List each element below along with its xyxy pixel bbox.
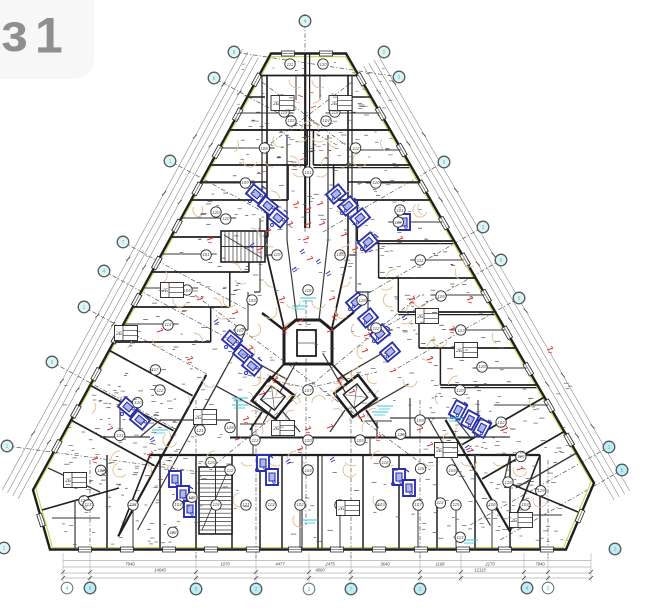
svg-text:12115: 12115 [474,568,486,573]
svg-text:106: 106 [260,146,268,151]
svg-text:104: 104 [174,502,182,507]
svg-text:102: 102 [296,502,304,507]
svg-text:113: 113 [130,502,138,507]
svg-text:106: 106 [488,502,496,507]
svg-text:8: 8 [233,50,236,56]
svg-text:104: 104 [448,468,456,473]
svg-text:2: 2 [255,587,258,593]
svg-text:104: 104 [304,468,312,473]
svg-text:2Б: 2Б [417,314,424,320]
svg-text:103: 103 [248,298,256,303]
svg-text:5: 5 [621,468,624,474]
svg-text:1: 1 [3,546,6,552]
svg-text:111: 111 [287,62,294,67]
svg-text:101: 101 [396,208,404,213]
svg-text:1168: 1168 [435,562,445,567]
svg-text:3: 3 [482,225,485,231]
svg-text:2170: 2170 [484,562,495,567]
svg-text:104: 104 [236,328,244,333]
svg-text:6: 6 [51,360,54,366]
svg-text:з: з [1,3,28,63]
svg-text:7: 7 [122,240,125,246]
svg-text:128: 128 [478,364,486,369]
svg-text:110: 110 [223,216,231,221]
svg-text:2: 2 [614,547,617,553]
svg-text:120: 120 [134,400,142,405]
svg-text:2Б: 2Б [273,101,280,107]
svg-text:125: 125 [207,460,215,465]
svg-text:7940: 7940 [125,562,135,567]
svg-text:3640: 3640 [380,562,390,567]
svg-text:2Б: 2Б [338,506,345,512]
svg-text:7940: 7940 [535,562,545,567]
svg-text:2Б: 2Б [195,415,202,421]
svg-text:8: 8 [89,586,92,592]
svg-text:14640: 14640 [154,568,166,573]
svg-text:1: 1 [35,8,63,64]
svg-text:4477: 4477 [275,562,285,567]
svg-text:107: 107 [304,388,312,393]
svg-text:2475: 2475 [324,562,335,567]
svg-text:121: 121 [116,433,124,438]
svg-text:1070: 1070 [220,562,230,567]
svg-text:2Б: 2Б [273,426,280,432]
svg-text:109: 109 [416,418,424,423]
svg-text:6: 6 [500,258,503,264]
svg-text:1: 1 [6,444,9,450]
svg-text:121: 121 [196,428,204,433]
svg-text:104: 104 [322,118,330,123]
svg-text:113: 113 [437,500,445,505]
svg-text:123: 123 [457,328,465,333]
svg-text:128: 128 [504,480,512,485]
svg-text:112: 112 [373,326,381,331]
svg-text:128: 128 [188,495,196,500]
svg-text:112: 112 [157,388,165,393]
svg-text:1: 1 [83,305,86,311]
svg-text:6: 6 [518,296,521,302]
svg-text:116: 116 [213,502,221,507]
svg-text:113: 113 [85,502,93,507]
svg-text:113: 113 [457,535,465,540]
svg-text:120: 120 [304,438,312,443]
svg-text:3: 3 [308,587,311,593]
svg-text:111: 111 [417,258,424,263]
svg-text:2: 2 [419,587,422,593]
svg-text:4: 4 [103,269,106,275]
svg-text:2Б: 2Б [116,331,123,337]
svg-text:2Б: 2Б [436,448,443,454]
svg-text:113: 113 [268,502,276,507]
svg-text:105: 105 [356,438,364,443]
svg-text:118: 118 [418,466,426,471]
svg-text:120: 120 [372,180,380,185]
svg-text:105: 105 [437,294,445,299]
svg-text:113: 113 [252,438,260,443]
svg-text:4: 4 [526,586,529,592]
svg-text:5: 5 [195,587,198,593]
svg-text:101: 101 [304,170,312,175]
svg-text:6: 6 [443,160,446,166]
svg-text:4660: 4660 [315,568,325,573]
svg-text:102: 102 [287,118,295,123]
svg-text:1: 1 [169,159,172,165]
svg-text:128: 128 [358,298,366,303]
svg-text:128: 128 [226,425,234,430]
svg-text:2Б: 2Б [456,348,463,354]
svg-text:2: 2 [547,586,550,592]
svg-text:7: 7 [350,587,353,593]
svg-text:2Б: 2Б [511,518,518,524]
svg-text:105: 105 [183,288,191,293]
svg-text:4: 4 [304,19,307,25]
svg-text:119: 119 [274,252,282,257]
svg-text:117: 117 [152,367,160,372]
svg-text:112: 112 [353,146,361,151]
svg-text:6: 6 [213,76,216,82]
svg-text:107: 107 [414,502,422,507]
svg-text:103: 103 [377,502,385,507]
svg-text:2: 2 [383,50,386,56]
svg-text:120: 120 [456,388,464,393]
svg-text:116: 116 [382,460,390,465]
svg-text:2Б: 2Б [331,101,338,107]
svg-text:118: 118 [305,288,313,293]
svg-text:109: 109 [241,180,249,185]
svg-text:102: 102 [497,420,505,425]
svg-text:115: 115 [453,502,461,507]
svg-text:1: 1 [608,445,611,451]
svg-text:120: 120 [212,210,220,215]
svg-text:120: 120 [319,62,327,67]
svg-text:112: 112 [227,468,235,473]
svg-text:3: 3 [398,75,401,81]
svg-text:114: 114 [165,322,173,327]
svg-text:2Б: 2Б [65,478,72,484]
svg-text:4: 4 [66,586,69,592]
svg-text:101: 101 [202,252,210,257]
